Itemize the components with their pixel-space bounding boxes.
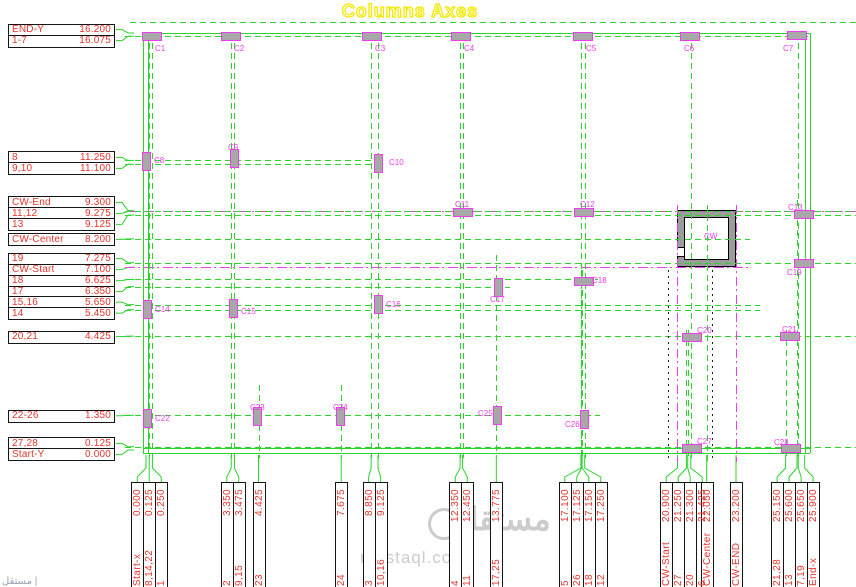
grid-line-v-12.450 [463, 33, 464, 458]
column-marker-C25 [493, 406, 502, 425]
column-label-C8: C8 [154, 157, 164, 165]
y-axis-name: CW-Center [12, 235, 64, 245]
y-axis-value: 6.625 [85, 276, 111, 286]
x-axis-value: 12.350 [450, 489, 461, 541]
core-wall-notch [677, 247, 684, 257]
column-marker-C14 [143, 300, 152, 319]
y-axis-name: 20,21 [12, 332, 38, 342]
y-axis-name: CW-End [12, 198, 51, 208]
grid-line-v-23.200 [736, 205, 737, 462]
column-marker-C3 [362, 32, 382, 41]
frame-line-2 [143, 453, 810, 454]
x-axis-value: 20.900 [661, 489, 672, 541]
y-axis-value: 8.200 [85, 235, 111, 245]
column-marker-C16 [374, 295, 383, 314]
y-axis-value: 7.100 [85, 265, 111, 275]
x-axis-value: 25.650 [796, 489, 807, 541]
grid-line-v-21.425 [691, 33, 692, 458]
frame-line-6 [810, 33, 811, 453]
grid-line-v-21.300 [688, 330, 689, 458]
y-axis-name: 1-7 [12, 36, 27, 46]
grid-line-v-9.125 [378, 33, 379, 458]
x-axis-value: 17.150 [584, 489, 595, 541]
x-axis-value: 9.125 [376, 489, 387, 541]
x-axis-name: 20 [685, 538, 696, 586]
column-label-C5: C5 [586, 45, 596, 53]
column-marker-C4 [451, 32, 471, 41]
cad-canvas[interactable]: Columns Axes CW مستقل mostaql.com مستقل … [0, 0, 856, 587]
x-axis-name: 2 [222, 538, 233, 586]
column-label-C21: C21 [782, 326, 797, 334]
y-axis-label-9,10: 9,1011.100 [8, 162, 115, 175]
y-axis-value: 0.125 [85, 439, 111, 449]
x-axis-name: 4 [450, 538, 461, 586]
y-axis-value: 0.000 [85, 450, 111, 460]
x-axis-value: 17.100 [560, 489, 571, 541]
y-axis-value: 16.200 [79, 25, 111, 35]
y-axis-label-13: 139.125 [8, 218, 115, 231]
column-marker-C2 [221, 32, 241, 41]
x-axis-name: 24 [336, 538, 347, 586]
x-axis-value: 23.200 [731, 489, 742, 541]
x-axis-value: 25.600 [784, 489, 795, 541]
y-axis-value: 9.275 [85, 209, 111, 219]
y-axis-name: 14 [12, 309, 24, 319]
grid-line-v-17.250 [585, 33, 586, 458]
x-axis-name: 17,25 [491, 538, 502, 586]
leader-lines [0, 0, 856, 587]
y-axis-name: 22-26 [12, 411, 39, 421]
y-axis-name: 13 [12, 220, 24, 230]
column-label-C15: C15 [241, 308, 256, 316]
column-marker-C1 [142, 32, 162, 41]
column-label-C18: C18 [592, 277, 607, 285]
column-label-C3: C3 [375, 45, 385, 53]
y-axis-name: Start-Y [12, 450, 45, 460]
x-axis-value: 0.125 [144, 489, 155, 541]
y-axis-value: 11.100 [80, 164, 111, 174]
column-marker-C7 [787, 31, 807, 40]
column-label-C19: C19 [787, 269, 802, 277]
x-axis-name: 12 [596, 538, 607, 586]
column-label-C28: C28 [774, 439, 789, 447]
frame-line-3 [143, 33, 144, 453]
y-axis-label-Start-Y: Start-Y0.000 [8, 448, 115, 461]
x-axis-value: 0.250 [156, 489, 167, 541]
column-label-C24: C24 [333, 404, 348, 412]
x-axis-name: 8,14,22 [144, 538, 155, 586]
grid-line-h-1.350 [125, 415, 600, 416]
grid-line-v-0.250 [152, 33, 153, 458]
y-axis-name: 8 [12, 153, 18, 163]
y-axis-label-20,21: 20,214.425 [8, 331, 115, 344]
grid-line-v-3.350 [231, 33, 232, 458]
column-marker-C22 [143, 409, 152, 428]
y-axis-value: 11.250 [80, 153, 111, 163]
y-axis-label-22-26: 22-261.350 [8, 410, 115, 423]
column-marker-C6 [680, 32, 700, 41]
drawing-title: Columns Axes [300, 1, 520, 22]
column-label-C12: C12 [580, 201, 595, 209]
column-label-C6: C6 [684, 45, 694, 53]
y-axis-value: 5.450 [85, 309, 111, 319]
y-axis-value: 9.300 [85, 198, 111, 208]
grid-line-h-5.650 [125, 305, 760, 306]
x-axis-value: 17.250 [596, 489, 607, 541]
grid-line-v-3.475 [234, 33, 235, 458]
x-axis-value: 4.425 [254, 489, 265, 541]
column-label-C17: C17 [490, 296, 505, 304]
column-label-C22: C22 [155, 415, 170, 423]
y-axis-label-14: 145.450 [8, 307, 115, 320]
column-label-C9: C9 [228, 144, 238, 152]
frame-line-1 [143, 448, 810, 449]
x-axis-name: 7,19 [796, 538, 807, 586]
column-label-C11: C11 [455, 201, 469, 209]
y-axis-label-1-7: 1-716.075 [8, 35, 115, 48]
column-marker-C26 [580, 410, 589, 429]
column-label-C27: C27 [697, 438, 712, 446]
x-axis-name: 23 [254, 538, 265, 586]
grid-line-v-25.650 [798, 33, 799, 458]
grid-line-h-7.100 [125, 267, 750, 268]
x-axis-name: Start-x [132, 538, 143, 586]
frame-line-9 [712, 270, 713, 458]
x-axis-value: 8.850 [364, 489, 375, 541]
watermark-corner-text: مستقل | [2, 576, 37, 587]
grid-line-v-20.900 [677, 205, 678, 462]
grid-line-h-8.200 [125, 239, 750, 240]
x-axis-name: 10,16 [376, 538, 387, 586]
y-axis-name: 11,12 [12, 209, 37, 219]
frame-line-4 [148, 33, 149, 453]
x-axis-name: 5 [560, 538, 571, 586]
x-axis-name: 21,28 [772, 538, 783, 586]
grid-line-v-17.150 [582, 270, 583, 458]
grid-line-h-5.450 [125, 310, 760, 311]
y-axis-value: 16.075 [79, 36, 111, 46]
column-label-C10: C10 [389, 159, 404, 167]
column-marker-C5 [573, 32, 593, 41]
grid-line-h-6.350 [125, 287, 510, 288]
y-axis-name: 19 [12, 254, 24, 264]
x-axis-name: 9,15 [234, 538, 245, 586]
column-label-C23: C23 [250, 404, 265, 412]
y-axis-name: 9,10 [12, 164, 32, 174]
x-axis-value: 7.675 [336, 489, 347, 541]
x-axis-value: 12.450 [462, 489, 473, 541]
column-label-C25: C25 [478, 410, 493, 418]
y-axis-name: 27,28 [12, 439, 38, 449]
column-marker-C15 [229, 299, 238, 318]
grid-line-v-12.350 [460, 33, 461, 458]
grid-line-v-21.250 [686, 330, 687, 458]
x-axis-name: End-x [808, 538, 819, 586]
column-marker-C8 [142, 152, 151, 171]
x-axis-name: CW-END [731, 538, 742, 586]
y-axis-name: END-Y [12, 25, 44, 35]
x-axis-value: 13.775 [491, 489, 502, 541]
column-label-C13: C13 [788, 204, 803, 212]
x-axis-name: 26 [572, 538, 583, 586]
x-axis-name: 27 [673, 538, 684, 586]
x-axis-value: 21.250 [673, 489, 684, 541]
x-axis-value: 3.350 [222, 489, 233, 541]
grid-line-v-8.850 [371, 33, 372, 458]
x-axis-name: CW-Start [661, 538, 672, 586]
frame-line-7 [130, 22, 856, 23]
frame-line-0 [143, 33, 810, 34]
y-axis-label-CW-Center: CW-Center8.200 [8, 233, 115, 246]
y-axis-value: 7.275 [85, 254, 111, 264]
column-marker-C10 [374, 154, 383, 173]
x-axis-name: 3 [364, 538, 375, 586]
column-marker-C18 [574, 277, 594, 286]
column-label-C16: C16 [386, 301, 401, 309]
column-label-C26: C26 [565, 421, 580, 429]
frame-line-8 [668, 270, 669, 458]
x-axis-value: 21.300 [685, 489, 696, 541]
column-marker-C17 [494, 278, 503, 297]
x-axis-value: 25.150 [772, 489, 783, 541]
x-axis-name: 11 [462, 538, 473, 586]
column-label-C7: C7 [783, 45, 793, 53]
x-axis-name: 13 [784, 538, 795, 586]
frame-line-5 [805, 33, 806, 453]
column-label-C4: C4 [464, 45, 474, 53]
y-axis-value: 5.650 [85, 298, 111, 308]
grid-line-h-6.625 [125, 279, 598, 280]
y-axis-value: 4.425 [85, 332, 111, 342]
x-axis-name: 1 [156, 538, 167, 586]
column-marker-C19 [794, 259, 814, 268]
y-axis-name: 18 [12, 276, 24, 286]
y-axis-value: 1.350 [85, 411, 111, 421]
x-axis-value: 25.900 [808, 489, 819, 541]
grid-line-v-0.125 [149, 33, 150, 458]
column-label-C2: C2 [234, 45, 244, 53]
x-axis-name: CW-Center [702, 538, 713, 586]
x-axis-value: 17.125 [572, 489, 583, 541]
y-axis-name: 15,16 [12, 298, 38, 308]
column-label-C1: C1 [155, 45, 165, 53]
x-axis-name: 18 [584, 538, 595, 586]
column-label-C14: C14 [155, 306, 170, 314]
y-axis-name: CW-Start [12, 265, 55, 275]
column-label-C20: C20 [697, 327, 712, 335]
y-axis-value: 9.125 [85, 220, 111, 230]
x-axis-value: 3.475 [234, 489, 245, 541]
x-axis-value: 0.000 [132, 489, 143, 541]
